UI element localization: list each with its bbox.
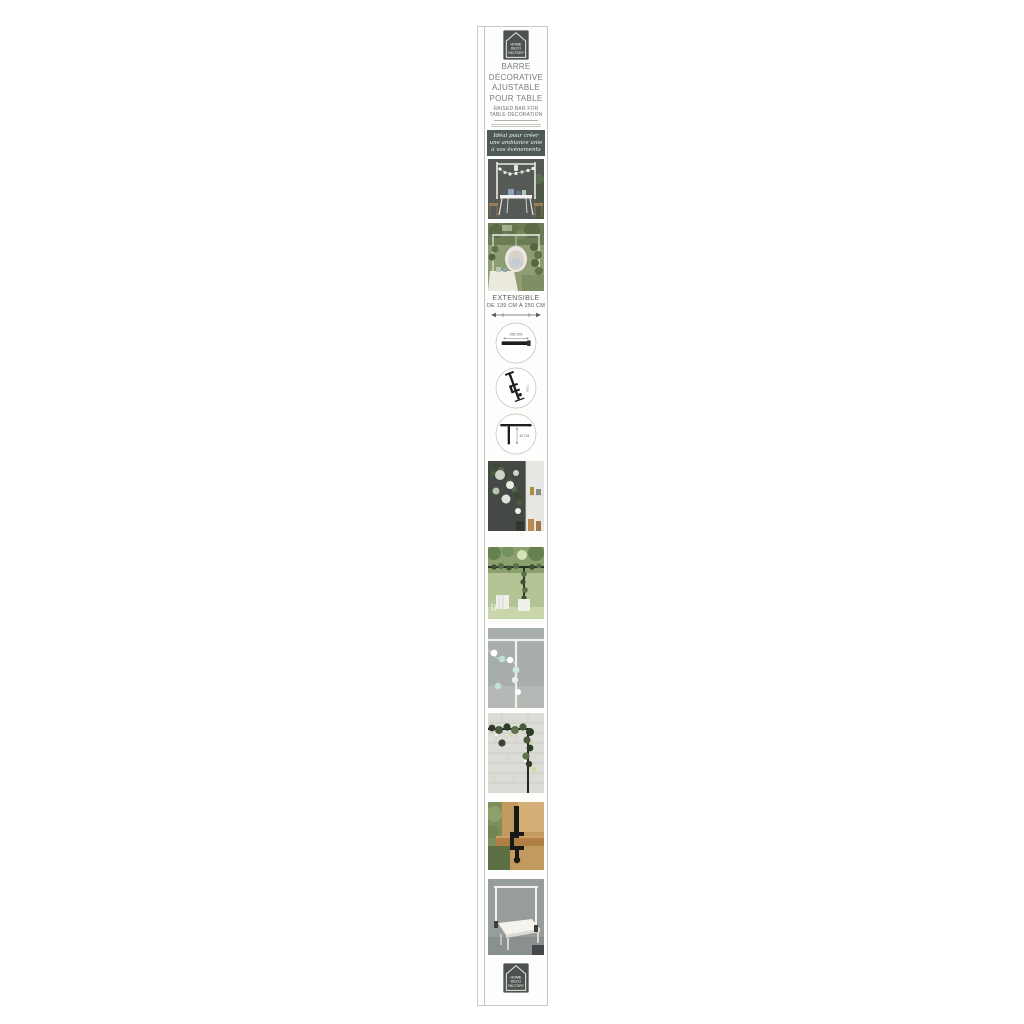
tagline-line-3: à vos événements xyxy=(487,147,545,154)
box-front-panel: HOME DECO FACTORY BARRE DÉCORATIVE AJUST… xyxy=(484,26,548,1006)
photo-clamp-closeup xyxy=(488,802,544,870)
product-title: BARRE DÉCORATIVE AJUSTABLE POUR TABLE xyxy=(489,62,543,104)
brand-line-3: FACTORY xyxy=(508,984,524,988)
brand-logo-top: HOME DECO FACTORY xyxy=(503,30,529,60)
tagline-line-1: Idéal pour créer xyxy=(487,133,545,140)
drop-height-label: 40 CM xyxy=(519,434,529,438)
photo-table-string-lights xyxy=(488,159,544,219)
brand-logo-bottom: HOME DECO FACTORY xyxy=(503,963,529,993)
brand-line-1: HOME xyxy=(511,976,523,980)
photo-disc-garland xyxy=(488,461,544,531)
fine-print-line xyxy=(491,124,541,125)
tagline-band: Idéal pour créer une ambiance unie à vos… xyxy=(487,130,545,156)
product-subtitle: RAISED BAR FOR TABLE DECORATION xyxy=(489,106,542,118)
photo-full-product xyxy=(488,879,544,955)
product-box: HOME DECO FACTORY BARRE DÉCORATIVE AJUST… xyxy=(477,26,548,1006)
product-photo-stage: HOME DECO FACTORY BARRE DÉCORATIVE AJUST… xyxy=(0,0,1024,1024)
divider xyxy=(494,120,538,121)
title-line-1: BARRE xyxy=(489,62,543,73)
extensible-label: EXTENSIBLE xyxy=(487,295,545,302)
brand-line-1: HOME xyxy=(511,42,523,46)
extensible-spec: EXTENSIBLE DE 139 CM À 250 CM xyxy=(487,295,545,319)
bar-length-label: 250 CM xyxy=(510,333,523,337)
brand-line-3: FACTORY xyxy=(508,51,524,55)
diagram-clamp: 7 CM xyxy=(495,367,537,409)
brand-line-2: DECO xyxy=(511,47,522,51)
extensible-range: DE 139 CM À 250 CM xyxy=(487,303,545,309)
photo-foliage-bar-garden xyxy=(488,547,544,619)
fine-print-line xyxy=(491,126,541,127)
subtitle-line-2: TABLE DECORATION xyxy=(489,112,542,118)
clamp-depth-label: 7 CM xyxy=(525,385,529,393)
diagram-bar-length: 250 CM xyxy=(495,322,537,364)
photo-ball-garland-bar xyxy=(488,628,544,708)
photo-garden-hanging-decor xyxy=(488,223,544,291)
double-arrow-icon xyxy=(491,311,541,319)
title-line-4: POUR TABLE xyxy=(489,94,543,105)
tagline-line-2: une ambiance unie xyxy=(487,140,545,147)
diagram-drop-height: 40 CM xyxy=(495,413,537,455)
box-side-panel xyxy=(477,26,484,1006)
brand-line-2: DECO xyxy=(511,980,522,984)
title-line-2: DÉCORATIVE xyxy=(489,73,543,84)
title-line-3: AJUSTABLE xyxy=(489,83,543,94)
photo-dark-foliage-corner xyxy=(488,713,544,793)
